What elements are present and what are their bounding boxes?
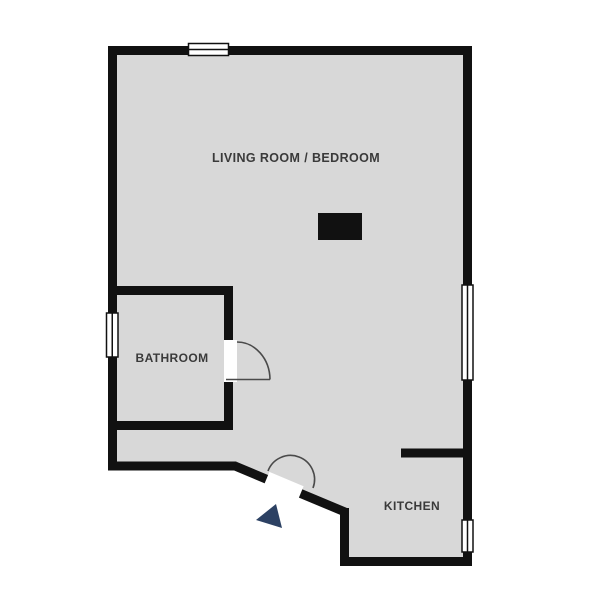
floor-plan-canvas: LIVING ROOM / BEDROOM BATHROOM KITCHEN	[0, 0, 600, 601]
bathroom-label: BATHROOM	[136, 351, 209, 365]
kitchen-label: KITCHEN	[384, 499, 440, 513]
floor-plan-page: LIVING ROOM / BEDROOM BATHROOM KITCHEN	[0, 0, 600, 601]
bathroom-door-opening	[224, 340, 237, 382]
living-room-label: LIVING ROOM / BEDROOM	[212, 151, 380, 165]
furniture-block	[318, 213, 362, 240]
